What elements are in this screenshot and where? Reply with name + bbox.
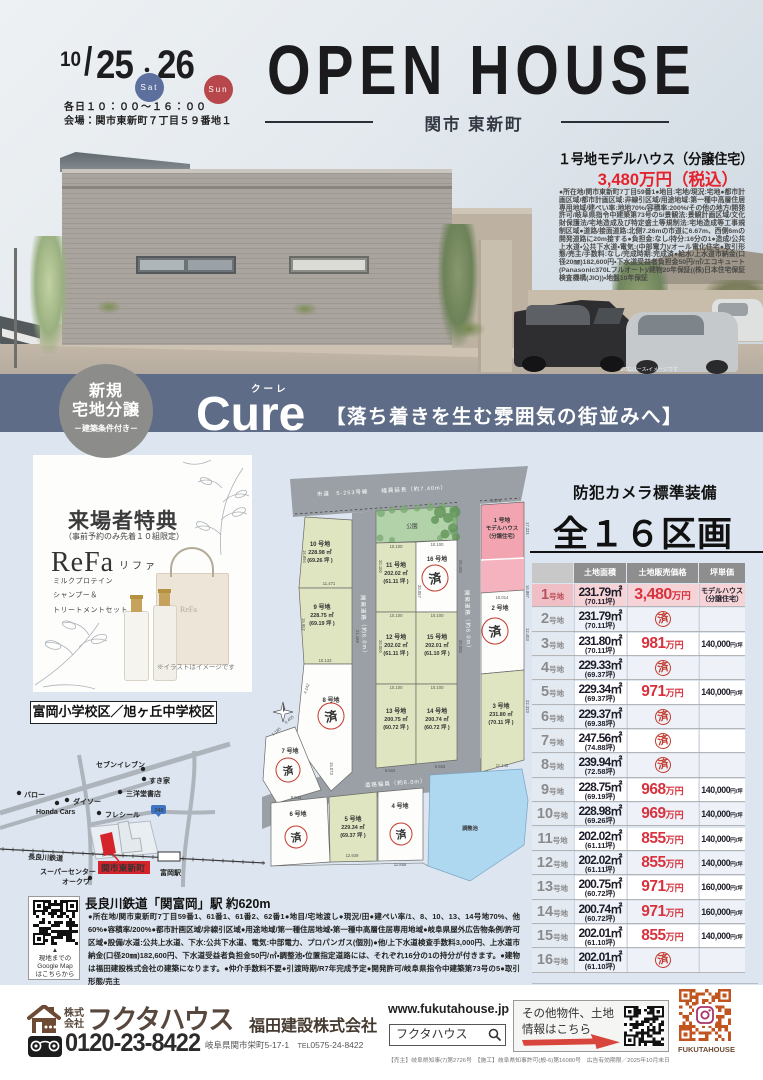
svg-text:(69.37 坪 ): (69.37 坪 )	[340, 831, 366, 839]
svg-text:6.563: 6.563	[435, 764, 446, 769]
svg-text:15.073: 15.073	[329, 762, 334, 775]
svg-text:(69.19 坪 ): (69.19 坪 )	[309, 619, 335, 627]
svg-text:202.02 ㎡: 202.02 ㎡	[384, 641, 408, 649]
svg-text:フレシール: フレシール	[105, 811, 140, 819]
svg-text:13 号地: 13 号地	[386, 707, 406, 715]
svg-text:14 号地: 14 号地	[427, 707, 447, 715]
svg-text:7 号地: 7 号地	[281, 747, 298, 755]
svg-text:20.100: 20.100	[378, 560, 383, 573]
svg-text:1 号地: 1 号地	[494, 516, 511, 524]
svg-text:202.02 ㎡: 202.02 ㎡	[384, 569, 408, 577]
svg-text:2 号地: 2 号地	[491, 604, 508, 612]
svg-text:(69.26 坪 ): (69.26 坪 )	[307, 556, 333, 564]
svg-text:(60.72 坪 ): (60.72 坪 )	[383, 723, 409, 731]
svg-text:200.74 ㎡: 200.74 ㎡	[425, 715, 449, 723]
svg-text:12.939: 12.939	[346, 853, 359, 858]
svg-text:20.000: 20.000	[378, 640, 383, 653]
svg-text:調整池: 調整池	[462, 824, 478, 832]
svg-text:10.100: 10.100	[390, 544, 403, 549]
svg-text:200.75 ㎡: 200.75 ㎡	[384, 715, 408, 723]
svg-text:(61.11 坪 ): (61.11 坪 )	[383, 577, 408, 585]
svg-text:10.014: 10.014	[496, 595, 509, 600]
svg-text:10 号地: 10 号地	[310, 540, 330, 548]
svg-text:すき家: すき家	[149, 776, 170, 785]
svg-text:セブンイレブン: セブンイレブン	[96, 760, 145, 769]
svg-text:12.403: 12.403	[525, 628, 530, 641]
svg-text:20.100: 20.100	[458, 560, 463, 573]
svg-text:10.100: 10.100	[431, 613, 444, 618]
svg-text:22.323: 22.323	[525, 700, 530, 713]
svg-text:16.897: 16.897	[525, 585, 530, 598]
svg-text:15.952: 15.952	[301, 618, 306, 631]
svg-text:16.894: 16.894	[302, 550, 307, 563]
svg-text:11.145: 11.145	[496, 763, 509, 768]
svg-text:15 号地: 15 号地	[427, 633, 447, 641]
svg-text:20.000: 20.000	[458, 640, 463, 653]
svg-text:228.75 ㎡: 228.75 ㎡	[310, 611, 334, 619]
svg-text:オークワ: オークワ	[62, 877, 90, 886]
svg-text:（分譲住宅）: （分譲住宅）	[486, 532, 518, 540]
svg-text:三洋堂書店: 三洋堂書店	[126, 789, 161, 798]
svg-text:バロー: バロー	[24, 791, 45, 799]
svg-text:8.405: 8.405	[283, 714, 295, 725]
svg-text:10.100: 10.100	[431, 685, 444, 690]
svg-text:202.01 ㎡: 202.01 ㎡	[425, 641, 449, 649]
svg-text:6.563: 6.563	[385, 768, 396, 773]
svg-text:228.98 ㎡: 228.98 ㎡	[308, 548, 332, 556]
svg-text:関市東新町: 関市東新町	[101, 862, 145, 873]
svg-text:17.221: 17.221	[525, 522, 530, 535]
svg-text:9 号地: 9 号地	[313, 603, 330, 611]
svg-text:公園: 公園	[406, 523, 418, 530]
svg-text:富岡駅: 富岡駅	[160, 868, 182, 877]
svg-text:3 号地: 3 号地	[492, 702, 509, 710]
svg-text:5 号地: 5 号地	[344, 815, 361, 823]
svg-text:8.043: 8.043	[291, 795, 302, 800]
svg-text:248: 248	[155, 808, 164, 814]
svg-text:12 号地: 12 号地	[386, 633, 406, 641]
svg-text:スーパーセンター: スーパーセンター	[40, 867, 96, 876]
svg-text:(60.72 坪 ): (60.72 坪 )	[424, 723, 450, 731]
svg-text:11.471: 11.471	[323, 581, 336, 586]
svg-text:6 号地: 6 号地	[289, 810, 306, 818]
svg-text:Honda Cars: Honda Cars	[36, 809, 75, 816]
svg-text:(61.10 坪 ): (61.10 坪 )	[424, 649, 450, 657]
svg-text:10.100: 10.100	[390, 613, 403, 618]
svg-text:16 号地: 16 号地	[427, 555, 447, 563]
svg-text:長良川鉄道: 長良川鉄道	[28, 852, 63, 863]
svg-text:231.80 ㎡: 231.80 ㎡	[489, 710, 513, 718]
svg-text:229.34 ㎡: 229.34 ㎡	[341, 823, 365, 831]
svg-text:11 号地: 11 号地	[386, 561, 406, 569]
svg-text:20.057: 20.057	[417, 585, 422, 598]
svg-text:21.189: 21.189	[355, 630, 360, 643]
svg-text:10.100: 10.100	[431, 542, 444, 547]
svg-text:6.976: 6.976	[491, 498, 502, 503]
svg-text:モデルハウス: モデルハウス	[486, 524, 518, 532]
svg-text:11.858: 11.858	[394, 862, 407, 867]
svg-text:(61.11 坪 ): (61.11 坪 )	[383, 649, 408, 657]
svg-text:10.100: 10.100	[390, 685, 403, 690]
svg-text:ダイソー: ダイソー	[73, 797, 101, 806]
svg-text:4 号地: 4 号地	[391, 802, 408, 810]
svg-text:(70.11 坪 ): (70.11 坪 )	[488, 718, 513, 726]
svg-text:10.133: 10.133	[319, 658, 332, 663]
